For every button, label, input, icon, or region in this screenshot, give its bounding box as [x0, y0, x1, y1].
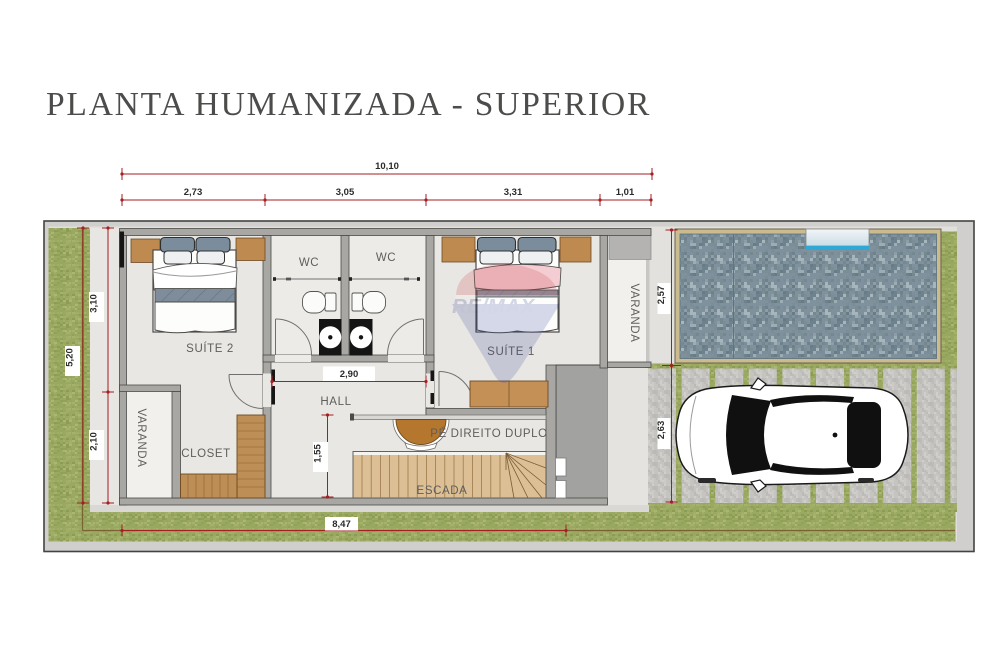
svg-text:2,90: 2,90	[340, 369, 359, 380]
svg-text:2,63: 2,63	[656, 421, 667, 440]
svg-text:PÉ DIREITO DUPLO: PÉ DIREITO DUPLO	[430, 427, 547, 440]
svg-text:2,73: 2,73	[184, 187, 203, 198]
svg-text:SUÍTE 2: SUÍTE 2	[186, 342, 234, 355]
svg-text:2,10: 2,10	[89, 432, 100, 451]
svg-text:CLOSET: CLOSET	[181, 448, 231, 460]
svg-text:3,31: 3,31	[504, 187, 523, 198]
svg-text:WC: WC	[299, 257, 319, 269]
svg-text:1,55: 1,55	[313, 444, 324, 463]
svg-text:ESCADA: ESCADA	[417, 485, 468, 497]
svg-text:1,01: 1,01	[616, 187, 635, 198]
svg-text:8,47: 8,47	[332, 519, 351, 530]
svg-text:5,20: 5,20	[65, 348, 76, 367]
svg-text:VARANDA: VARANDA	[135, 409, 147, 468]
svg-text:3,10: 3,10	[89, 294, 100, 313]
svg-text:RE/MAX: RE/MAX	[452, 295, 536, 318]
svg-text:WC: WC	[376, 252, 396, 264]
svg-text:3,05: 3,05	[336, 187, 355, 198]
svg-text:10,10: 10,10	[375, 161, 399, 172]
svg-text:2,57: 2,57	[656, 286, 667, 305]
svg-text:PLANTA HUMANIZADA - SUPERIOR: PLANTA HUMANIZADA - SUPERIOR	[46, 86, 651, 123]
svg-text:HALL: HALL	[320, 396, 351, 408]
svg-text:VARANDA: VARANDA	[628, 284, 640, 343]
